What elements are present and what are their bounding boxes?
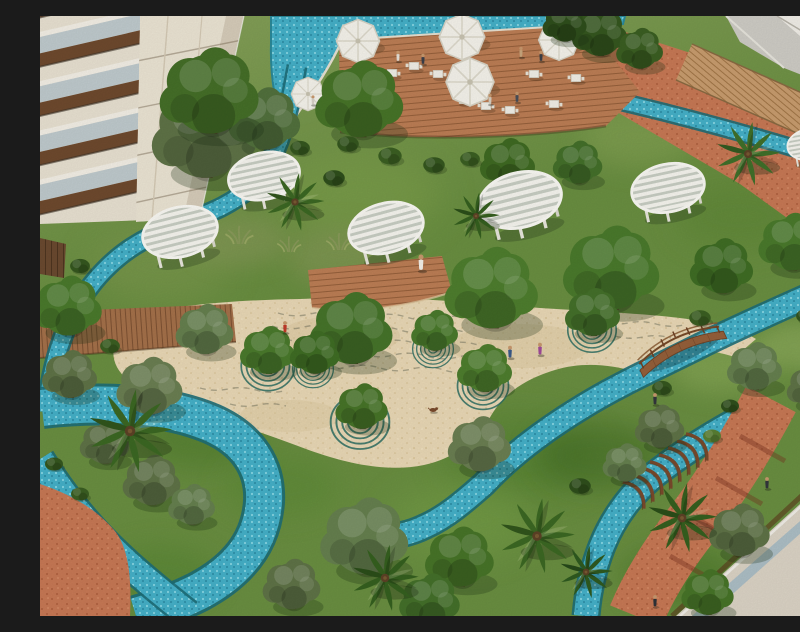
photo-grain <box>40 16 800 616</box>
aerial-courtyard-render <box>40 16 800 616</box>
